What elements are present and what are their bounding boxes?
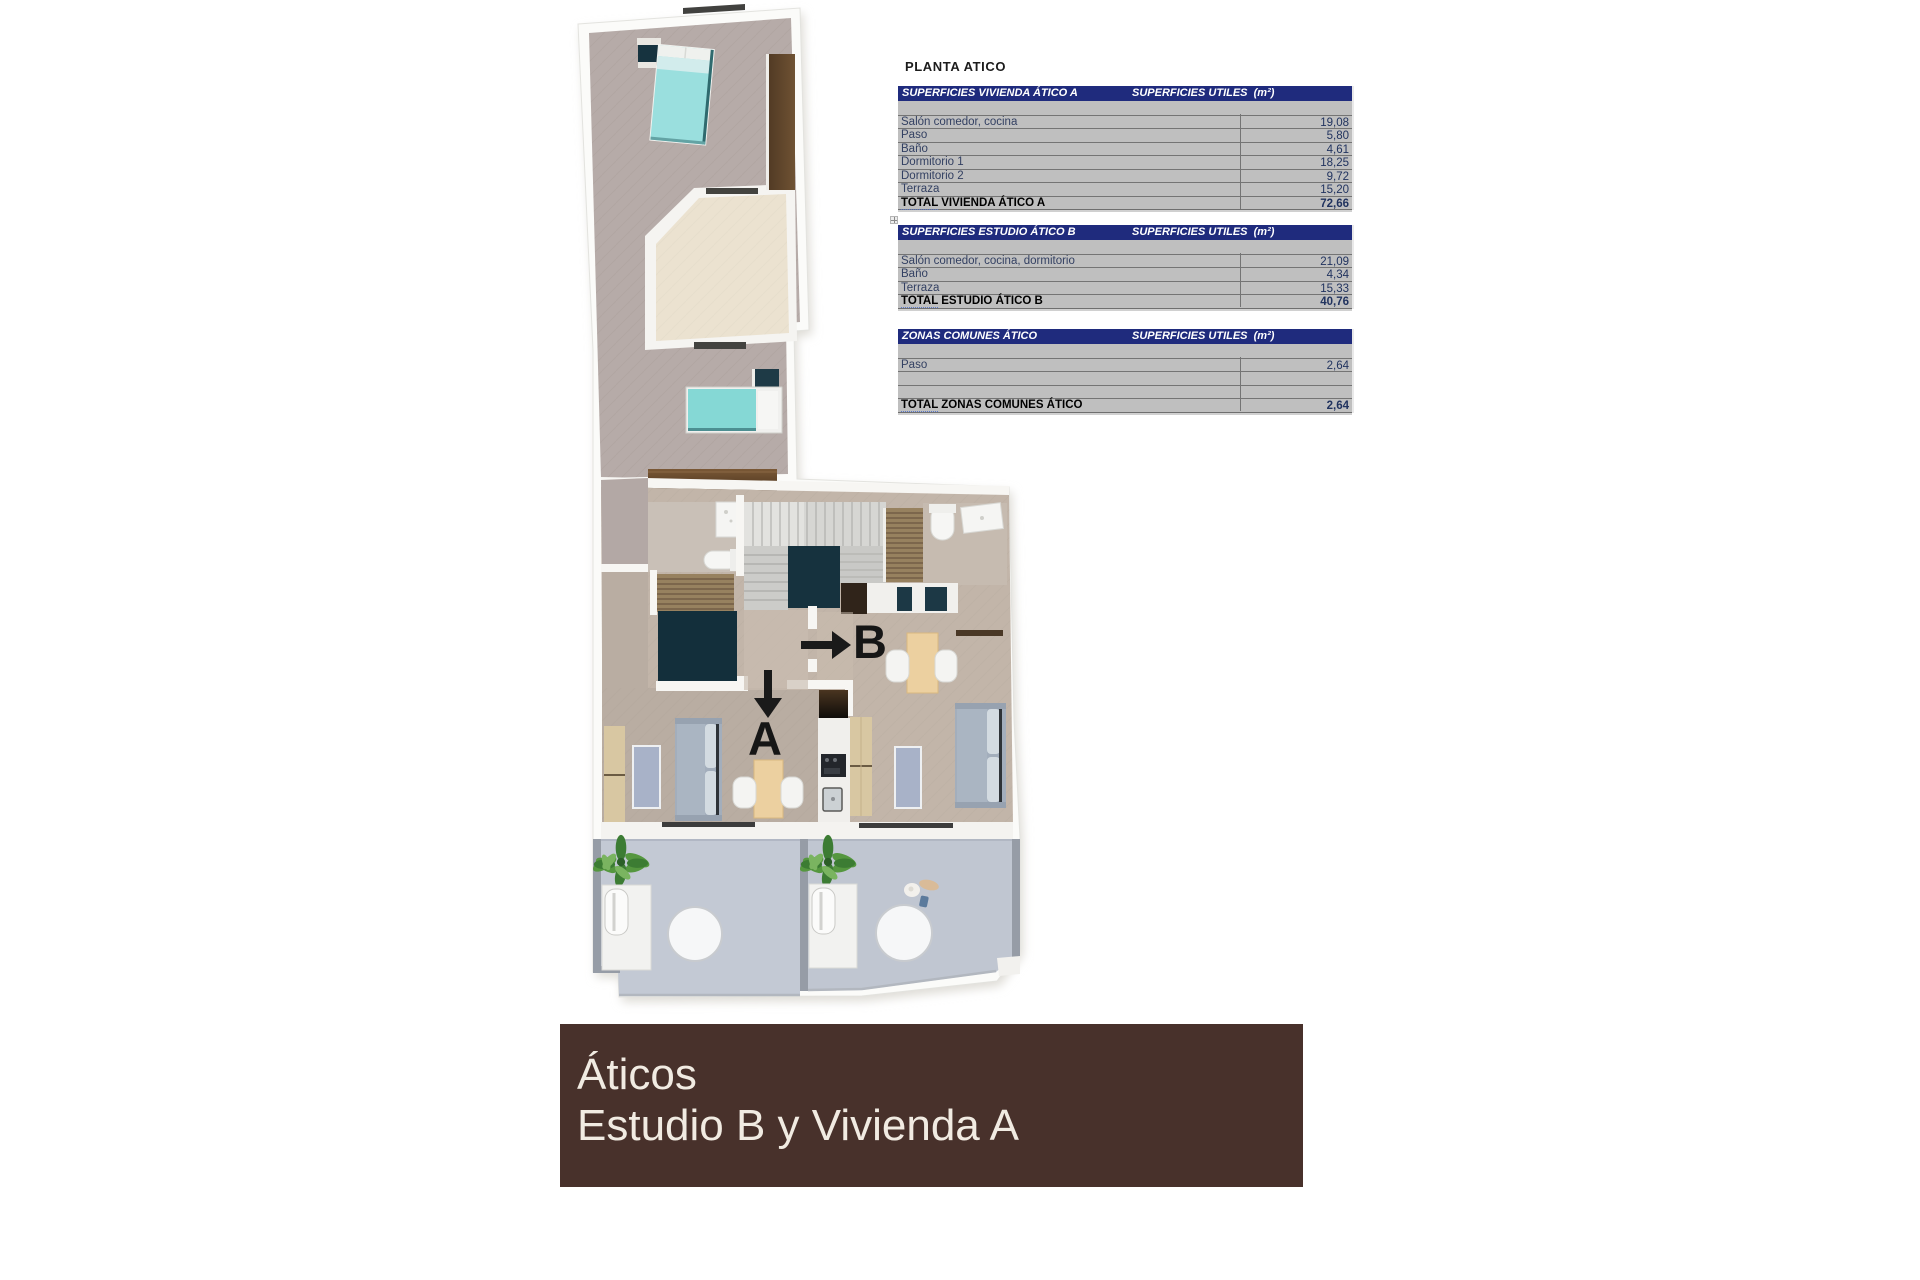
svg-text:A: A bbox=[748, 712, 782, 765]
svg-text:B: B bbox=[853, 615, 887, 668]
